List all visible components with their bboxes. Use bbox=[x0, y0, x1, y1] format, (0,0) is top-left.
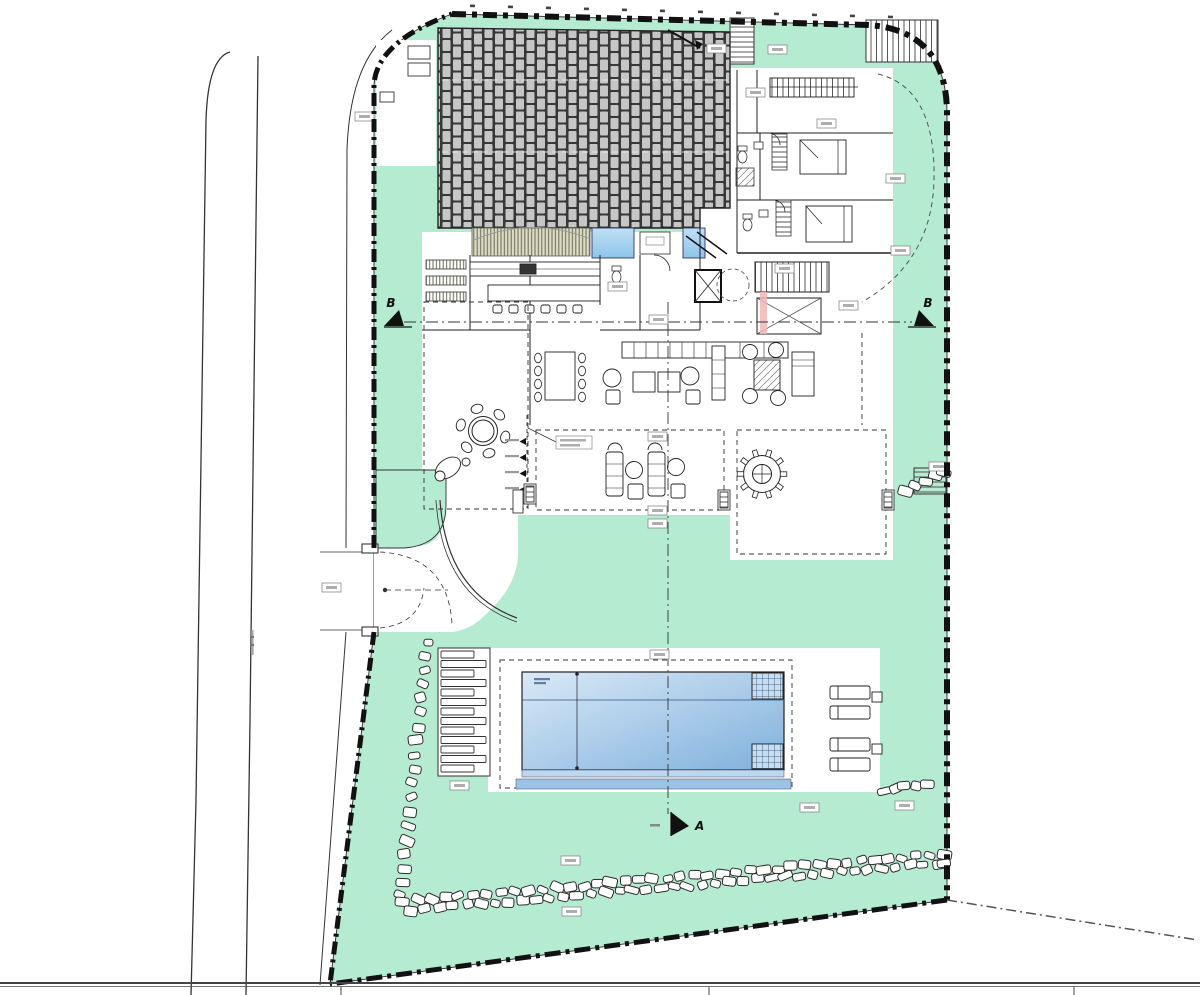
dining-table bbox=[545, 352, 575, 400]
stair-highlight bbox=[760, 292, 767, 334]
kitchen-island bbox=[488, 285, 600, 301]
section-a-smudge bbox=[650, 824, 660, 827]
coffee-table-1 bbox=[633, 372, 655, 392]
planter-box bbox=[513, 490, 523, 513]
level-label bbox=[608, 282, 627, 291]
level-label bbox=[561, 856, 580, 865]
pool-infinity-edge-1 bbox=[522, 770, 784, 777]
site-plan-page: B B A bbox=[0, 0, 1200, 995]
level-label bbox=[562, 907, 581, 916]
kitchen-hood bbox=[520, 264, 536, 274]
shower-1 bbox=[736, 168, 754, 186]
roof bbox=[438, 28, 730, 228]
level-label bbox=[450, 781, 469, 790]
armchair-right bbox=[681, 367, 699, 385]
level-label bbox=[800, 803, 819, 812]
bed-1 bbox=[800, 140, 846, 174]
bedroom-2 bbox=[806, 206, 852, 242]
daybed bbox=[792, 352, 814, 396]
pantry-shelves bbox=[426, 260, 466, 301]
armchair-left bbox=[603, 369, 621, 387]
title-block-edge bbox=[0, 983, 1200, 995]
level-label bbox=[768, 45, 787, 54]
section-marker-b-left: B bbox=[386, 296, 395, 310]
stair-top-left bbox=[730, 18, 754, 64]
level-label bbox=[649, 315, 668, 324]
spa-equipment-box bbox=[640, 232, 670, 254]
toilet-1 bbox=[738, 151, 747, 163]
tv-unit bbox=[712, 346, 725, 400]
toilet-2 bbox=[743, 219, 752, 231]
pool-infinity-edge-2 bbox=[516, 779, 791, 789]
section-marker-a: A bbox=[694, 819, 704, 833]
boundary-extension bbox=[947, 900, 1198, 940]
coffee-table-2 bbox=[658, 372, 680, 392]
level-label bbox=[886, 174, 905, 183]
level-label bbox=[775, 264, 794, 273]
water-feature-left bbox=[592, 228, 634, 258]
side-table-left bbox=[606, 390, 620, 404]
water-feature-right bbox=[683, 228, 705, 258]
level-label bbox=[648, 432, 667, 441]
level-label bbox=[322, 583, 341, 592]
site-plan-drawing: B B A bbox=[0, 0, 1200, 995]
level-label bbox=[355, 112, 374, 121]
stair-wing-exterior bbox=[770, 78, 858, 97]
driveway-level-dot bbox=[383, 588, 387, 592]
driveway-garden-patch bbox=[376, 470, 446, 548]
side-table-right bbox=[686, 390, 700, 404]
section-marker-b-right: B bbox=[923, 296, 932, 310]
pergola-louvers bbox=[472, 227, 590, 256]
level-label bbox=[648, 519, 667, 528]
sofa bbox=[622, 342, 788, 358]
level-label bbox=[707, 44, 726, 53]
sink-2 bbox=[759, 210, 768, 217]
level-label bbox=[648, 506, 667, 515]
lounger-table-2 bbox=[872, 744, 882, 754]
elevator bbox=[695, 270, 721, 302]
level-label bbox=[746, 88, 765, 97]
lounge-rug bbox=[754, 360, 780, 390]
pool-text-smudge bbox=[534, 678, 550, 680]
lounger-table-1 bbox=[872, 692, 882, 702]
sink-1 bbox=[754, 142, 763, 149]
level-label bbox=[817, 119, 836, 128]
powder-room-toilet bbox=[612, 266, 621, 283]
level-label bbox=[839, 301, 858, 310]
level-label bbox=[891, 246, 910, 255]
level-label bbox=[650, 650, 669, 659]
level-label bbox=[895, 801, 914, 810]
pool bbox=[516, 672, 791, 789]
bed-2 bbox=[806, 206, 852, 242]
road-inner-edge bbox=[246, 56, 258, 995]
bedroom-1 bbox=[800, 140, 846, 174]
road-outer-edge bbox=[191, 52, 230, 995]
